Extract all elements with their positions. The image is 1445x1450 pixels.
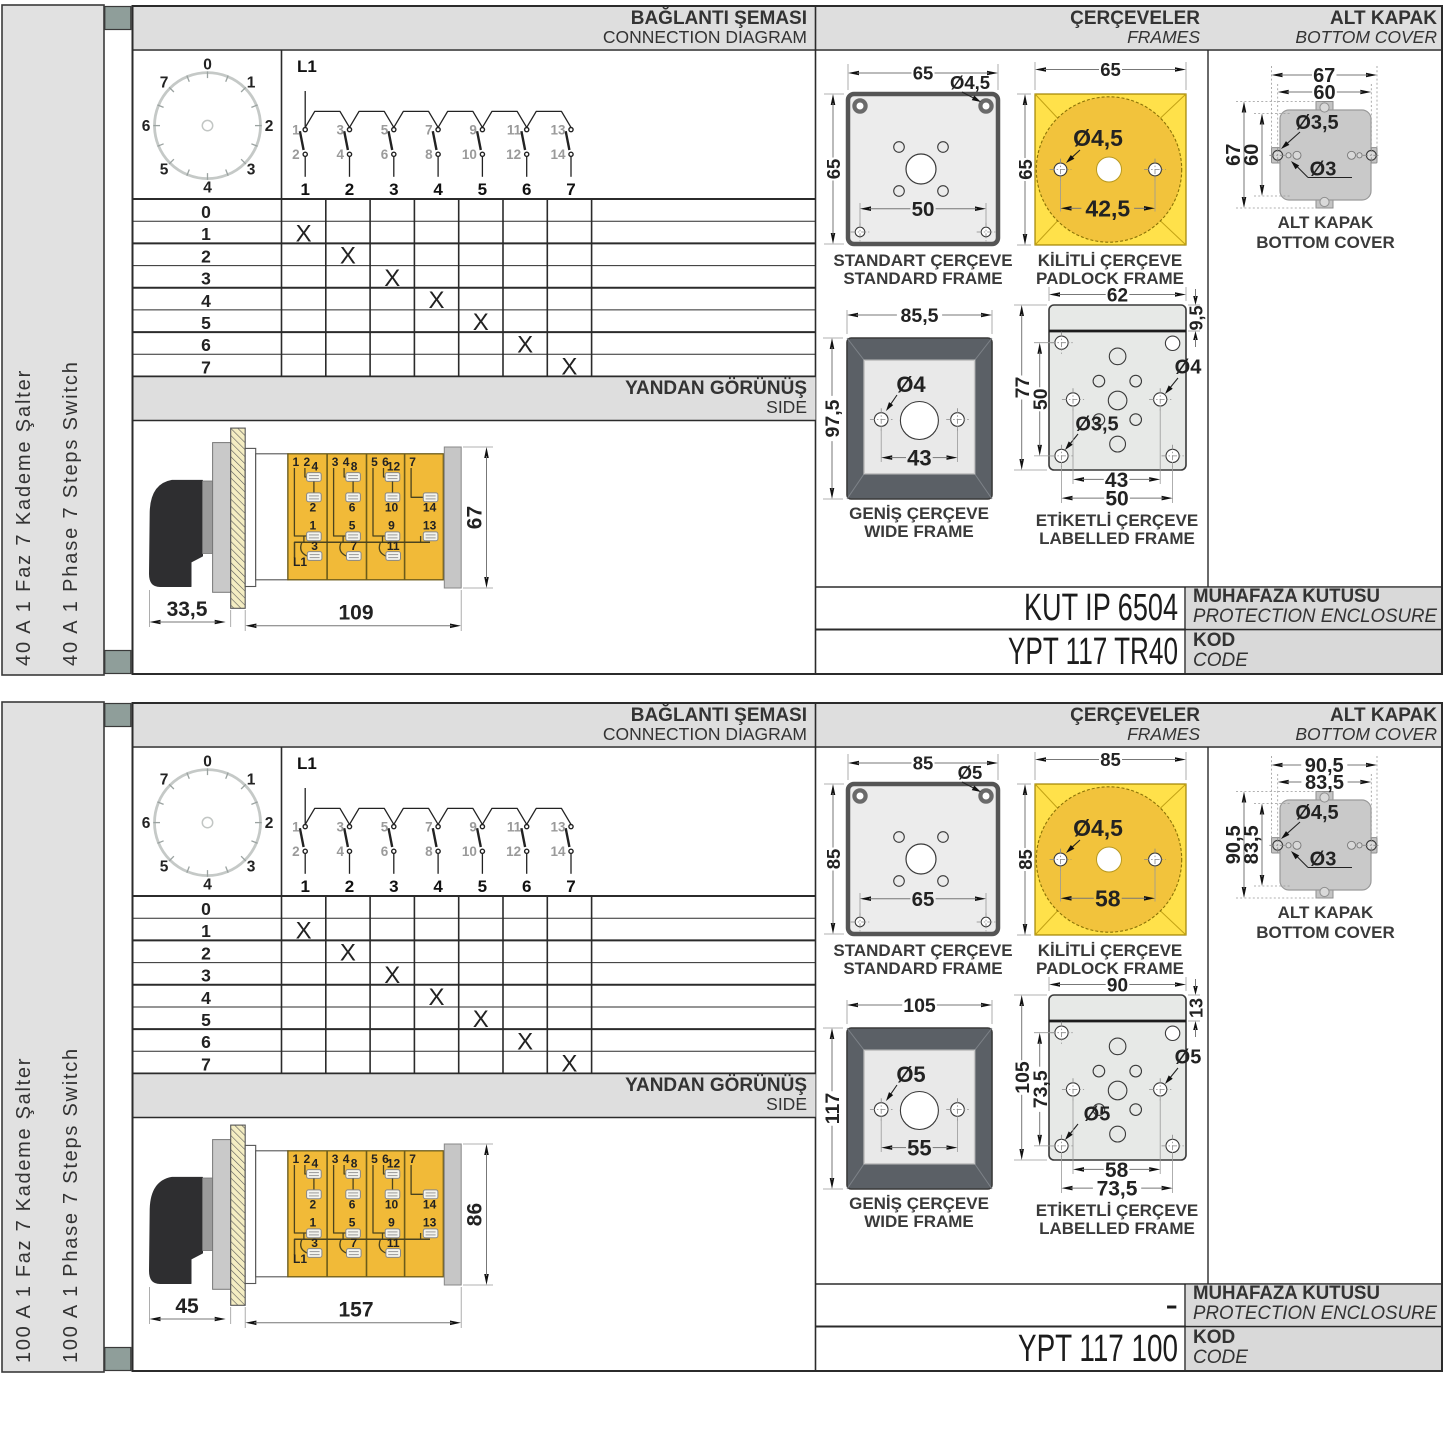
svg-text:L1: L1 xyxy=(297,57,317,76)
svg-text:62: 62 xyxy=(1107,285,1128,306)
svg-text:6: 6 xyxy=(349,1198,356,1212)
svg-text:8: 8 xyxy=(425,844,433,859)
svg-text:7: 7 xyxy=(566,180,575,199)
svg-text:X: X xyxy=(384,265,400,292)
svg-text:7: 7 xyxy=(425,819,433,834)
svg-text:0: 0 xyxy=(201,899,211,919)
svg-text:2: 2 xyxy=(292,147,300,162)
svg-text:0: 0 xyxy=(201,202,211,222)
svg-text:2: 2 xyxy=(304,455,311,469)
svg-text:PROTECTION ENCLOSURE: PROTECTION ENCLOSURE xyxy=(1193,606,1437,627)
svg-text:11: 11 xyxy=(387,1236,400,1250)
svg-text:10: 10 xyxy=(462,844,477,859)
svg-text:4: 4 xyxy=(312,1157,319,1171)
svg-text:0: 0 xyxy=(203,57,212,74)
svg-text:MUHAFAZA KUTUSU: MUHAFAZA KUTUSU xyxy=(1193,586,1380,607)
svg-text:83,5: 83,5 xyxy=(1305,772,1344,794)
svg-text:2: 2 xyxy=(310,1198,317,1212)
svg-text:BAĞLANTI ŞEMASI: BAĞLANTI ŞEMASI xyxy=(631,7,807,29)
svg-text:6: 6 xyxy=(142,118,151,135)
svg-text:4: 4 xyxy=(201,988,211,1008)
svg-text:85,5: 85,5 xyxy=(901,305,939,327)
svg-text:Ø3,5: Ø3,5 xyxy=(1295,112,1338,134)
svg-text:0: 0 xyxy=(203,754,212,771)
svg-text:Ø5: Ø5 xyxy=(1175,1047,1202,1069)
svg-text:Ø5: Ø5 xyxy=(958,762,983,783)
svg-text:4: 4 xyxy=(336,147,344,162)
svg-text:73,5: 73,5 xyxy=(1030,1070,1052,1108)
svg-text:6: 6 xyxy=(522,180,531,199)
svg-text:FRAMES: FRAMES xyxy=(1127,27,1200,47)
svg-text:5: 5 xyxy=(381,819,389,834)
svg-text:FRAMES: FRAMES xyxy=(1127,724,1200,744)
svg-text:105: 105 xyxy=(903,995,936,1017)
svg-text:11: 11 xyxy=(507,122,522,137)
svg-text:6: 6 xyxy=(142,815,151,832)
svg-text:3: 3 xyxy=(332,455,339,469)
svg-text:9: 9 xyxy=(469,122,477,137)
svg-text:X: X xyxy=(428,287,444,314)
svg-text:BOTTOM COVER: BOTTOM COVER xyxy=(1295,27,1437,47)
svg-text:60: 60 xyxy=(1313,82,1335,104)
svg-text:1: 1 xyxy=(293,1152,300,1166)
svg-text:-: - xyxy=(1165,1284,1178,1326)
svg-text:97,5: 97,5 xyxy=(822,399,844,437)
svg-text:2: 2 xyxy=(310,501,317,515)
svg-text:Ø4,5: Ø4,5 xyxy=(1073,125,1123,151)
svg-text:KİLİTLİ ÇERÇEVE: KİLİTLİ ÇERÇEVE xyxy=(1038,251,1183,270)
svg-text:40 A 1 Faz 7 Kademe Şalter: 40 A 1 Faz 7 Kademe Şalter xyxy=(13,369,35,666)
svg-text:5: 5 xyxy=(349,519,356,533)
svg-text:3: 3 xyxy=(389,877,398,896)
svg-text:3: 3 xyxy=(311,539,318,553)
svg-text:LABELLED FRAME: LABELLED FRAME xyxy=(1039,1219,1195,1238)
svg-text:2: 2 xyxy=(265,118,274,135)
svg-text:8: 8 xyxy=(351,1157,358,1171)
svg-text:9: 9 xyxy=(388,519,395,533)
svg-text:Ø4: Ø4 xyxy=(1175,357,1203,379)
svg-text:7: 7 xyxy=(201,357,211,377)
svg-text:L1: L1 xyxy=(297,754,317,773)
svg-text:ALT KAPAK: ALT KAPAK xyxy=(1330,705,1437,726)
svg-text:CONNECTION DIAGRAM: CONNECTION DIAGRAM xyxy=(603,724,807,744)
svg-text:109: 109 xyxy=(338,602,373,625)
svg-text:YANDAN GÖRÜNÜŞ: YANDAN GÖRÜNÜŞ xyxy=(625,1075,807,1096)
svg-text:Ø4,5: Ø4,5 xyxy=(1295,802,1338,824)
svg-text:X: X xyxy=(517,331,533,358)
svg-text:157: 157 xyxy=(338,1299,373,1322)
svg-text:10: 10 xyxy=(462,147,477,162)
svg-text:9,5: 9,5 xyxy=(1187,305,1207,330)
svg-text:WIDE FRAME: WIDE FRAME xyxy=(864,1212,974,1231)
svg-text:7: 7 xyxy=(409,455,416,469)
svg-text:10: 10 xyxy=(385,1198,399,1212)
svg-text:3: 3 xyxy=(389,180,398,199)
svg-text:KOD: KOD xyxy=(1193,630,1235,651)
svg-text:60: 60 xyxy=(1241,144,1263,166)
svg-text:SIDE: SIDE xyxy=(766,397,807,417)
svg-text:3: 3 xyxy=(201,269,211,289)
svg-text:Ø4: Ø4 xyxy=(896,372,926,397)
svg-text:KİLİTLİ ÇERÇEVE: KİLİTLİ ÇERÇEVE xyxy=(1038,941,1183,960)
svg-text:4: 4 xyxy=(336,844,344,859)
svg-text:8: 8 xyxy=(351,460,358,474)
svg-text:1: 1 xyxy=(300,877,309,896)
svg-text:3: 3 xyxy=(311,1236,318,1250)
svg-text:STANDART ÇERÇEVE: STANDART ÇERÇEVE xyxy=(833,251,1012,270)
svg-text:100 A 1 Phase 7 Steps Switch: 100 A 1 Phase 7 Steps Switch xyxy=(60,1047,82,1363)
svg-text:X: X xyxy=(473,309,489,336)
svg-text:BAĞLANTI ŞEMASI: BAĞLANTI ŞEMASI xyxy=(631,704,807,726)
svg-text:3: 3 xyxy=(336,819,344,834)
svg-text:4: 4 xyxy=(203,877,212,894)
svg-text:6: 6 xyxy=(201,335,211,355)
svg-text:3: 3 xyxy=(247,859,256,876)
svg-text:65: 65 xyxy=(912,888,935,911)
svg-text:33,5: 33,5 xyxy=(167,598,208,621)
svg-text:ETİKETLİ ÇERÇEVE: ETİKETLİ ÇERÇEVE xyxy=(1036,511,1198,530)
svg-text:1: 1 xyxy=(247,75,256,92)
svg-text:GENİŞ ÇERÇEVE: GENİŞ ÇERÇEVE xyxy=(849,1194,989,1213)
svg-text:3: 3 xyxy=(247,162,256,179)
svg-text:Ø4,5: Ø4,5 xyxy=(950,72,990,93)
svg-text:50: 50 xyxy=(912,198,935,221)
svg-text:X: X xyxy=(340,940,356,967)
svg-text:4: 4 xyxy=(201,291,211,311)
svg-text:2: 2 xyxy=(292,844,300,859)
svg-text:ETİKETLİ ÇERÇEVE: ETİKETLİ ÇERÇEVE xyxy=(1036,1201,1198,1220)
svg-text:5: 5 xyxy=(381,122,389,137)
svg-text:4: 4 xyxy=(433,877,443,896)
svg-text:42,5: 42,5 xyxy=(1085,196,1130,222)
svg-text:2: 2 xyxy=(345,877,354,896)
svg-text:5: 5 xyxy=(201,1010,211,1030)
svg-text:90: 90 xyxy=(1107,975,1128,996)
svg-text:7: 7 xyxy=(350,539,357,553)
svg-text:11: 11 xyxy=(387,539,400,553)
svg-text:13: 13 xyxy=(550,819,566,834)
svg-text:14: 14 xyxy=(423,1198,437,1212)
svg-text:83,5: 83,5 xyxy=(1241,825,1263,864)
svg-text:67: 67 xyxy=(464,506,487,529)
svg-text:58: 58 xyxy=(1095,886,1121,912)
svg-text:85: 85 xyxy=(913,753,934,774)
svg-text:6: 6 xyxy=(381,844,389,859)
svg-text:1: 1 xyxy=(310,519,317,533)
svg-text:12: 12 xyxy=(387,1157,401,1171)
svg-text:2: 2 xyxy=(345,180,354,199)
svg-text:KOD: KOD xyxy=(1193,1327,1235,1348)
svg-text:5: 5 xyxy=(160,162,169,179)
svg-text:1: 1 xyxy=(292,122,300,137)
svg-text:7: 7 xyxy=(566,877,575,896)
svg-text:STANDARD FRAME: STANDARD FRAME xyxy=(843,269,1002,288)
svg-text:100 A 1 Faz 7 Kademe Şalter: 100 A 1 Faz 7 Kademe Şalter xyxy=(13,1057,35,1363)
svg-text:9: 9 xyxy=(388,1216,395,1230)
svg-text:13: 13 xyxy=(1187,998,1207,1018)
svg-text:1: 1 xyxy=(247,772,256,789)
svg-text:1: 1 xyxy=(300,180,309,199)
svg-text:65: 65 xyxy=(1015,159,1036,180)
svg-text:7: 7 xyxy=(350,1236,357,1250)
svg-text:12: 12 xyxy=(387,460,401,474)
svg-text:11: 11 xyxy=(507,819,522,834)
svg-text:CONNECTION DIAGRAM: CONNECTION DIAGRAM xyxy=(603,27,807,47)
svg-text:MUHAFAZA KUTUSU: MUHAFAZA KUTUSU xyxy=(1193,1283,1380,1304)
svg-text:WIDE FRAME: WIDE FRAME xyxy=(864,522,974,541)
svg-text:4: 4 xyxy=(343,1152,350,1166)
svg-text:L1: L1 xyxy=(293,1252,307,1266)
svg-text:3: 3 xyxy=(332,1152,339,1166)
svg-text:1: 1 xyxy=(310,1216,317,1230)
svg-text:BOTTOM COVER: BOTTOM COVER xyxy=(1256,923,1395,942)
svg-text:14: 14 xyxy=(550,844,566,859)
svg-text:6: 6 xyxy=(522,877,531,896)
svg-text:10: 10 xyxy=(385,501,399,515)
svg-text:14: 14 xyxy=(550,147,566,162)
svg-text:5: 5 xyxy=(478,877,487,896)
svg-text:40 A 1 Phase 7 Steps Switch: 40 A 1 Phase 7 Steps Switch xyxy=(60,360,82,666)
svg-text:2: 2 xyxy=(201,246,211,266)
svg-text:50: 50 xyxy=(1030,388,1052,410)
svg-text:LABELLED FRAME: LABELLED FRAME xyxy=(1039,529,1195,548)
svg-text:X: X xyxy=(296,220,312,247)
svg-text:1: 1 xyxy=(292,819,300,834)
svg-text:5: 5 xyxy=(160,859,169,876)
svg-text:Ø4,5: Ø4,5 xyxy=(1073,815,1123,841)
svg-text:ÇERÇEVELER: ÇERÇEVELER xyxy=(1070,705,1200,726)
svg-text:13: 13 xyxy=(550,122,566,137)
svg-text:65: 65 xyxy=(823,159,844,180)
svg-text:X: X xyxy=(296,917,312,944)
svg-text:13: 13 xyxy=(423,519,437,533)
svg-text:5: 5 xyxy=(371,455,378,469)
svg-text:CODE: CODE xyxy=(1193,650,1248,671)
svg-text:5: 5 xyxy=(478,180,487,199)
svg-text:8: 8 xyxy=(425,147,433,162)
svg-text:6: 6 xyxy=(201,1032,211,1052)
svg-text:3: 3 xyxy=(201,966,211,986)
svg-text:STANDART ÇERÇEVE: STANDART ÇERÇEVE xyxy=(833,941,1012,960)
svg-text:BOTTOM COVER: BOTTOM COVER xyxy=(1295,724,1437,744)
svg-text:14: 14 xyxy=(423,501,437,515)
svg-text:45: 45 xyxy=(175,1295,199,1318)
svg-text:9: 9 xyxy=(469,819,477,834)
svg-text:13: 13 xyxy=(423,1216,437,1230)
svg-text:85: 85 xyxy=(823,849,844,870)
svg-text:GENİŞ ÇERÇEVE: GENİŞ ÇERÇEVE xyxy=(849,504,989,523)
svg-text:2: 2 xyxy=(265,815,274,832)
svg-text:4: 4 xyxy=(343,455,350,469)
svg-text:KUT IP 6504: KUT IP 6504 xyxy=(1024,587,1178,629)
svg-text:6: 6 xyxy=(381,147,389,162)
svg-text:2: 2 xyxy=(201,943,211,963)
svg-text:1: 1 xyxy=(201,921,211,941)
svg-text:12: 12 xyxy=(506,844,521,859)
svg-text:4: 4 xyxy=(312,460,319,474)
svg-text:5: 5 xyxy=(349,1216,356,1230)
svg-text:X: X xyxy=(473,1006,489,1033)
svg-text:YPT 117 TR40: YPT 117 TR40 xyxy=(1008,631,1178,673)
svg-text:1: 1 xyxy=(293,455,300,469)
svg-text:7: 7 xyxy=(160,772,169,789)
svg-text:YPT 117 100: YPT 117 100 xyxy=(1018,1328,1178,1370)
svg-text:55: 55 xyxy=(907,1136,931,1161)
svg-text:ÇERÇEVELER: ÇERÇEVELER xyxy=(1070,8,1200,29)
svg-text:CODE: CODE xyxy=(1193,1347,1248,1368)
svg-text:7: 7 xyxy=(409,1152,416,1166)
svg-text:4: 4 xyxy=(203,180,212,197)
svg-text:4: 4 xyxy=(433,180,443,199)
svg-text:7: 7 xyxy=(425,122,433,137)
svg-text:ALT KAPAK: ALT KAPAK xyxy=(1330,8,1437,29)
svg-text:7: 7 xyxy=(160,75,169,92)
svg-text:BOTTOM COVER: BOTTOM COVER xyxy=(1256,233,1395,252)
svg-text:X: X xyxy=(384,962,400,989)
svg-text:6: 6 xyxy=(349,501,356,515)
svg-text:65: 65 xyxy=(1100,59,1121,80)
svg-text:85: 85 xyxy=(1015,849,1036,870)
svg-text:7: 7 xyxy=(201,1054,211,1074)
svg-text:2: 2 xyxy=(304,1152,311,1166)
svg-text:43: 43 xyxy=(907,446,931,471)
svg-text:Ø5: Ø5 xyxy=(1084,1104,1111,1126)
svg-text:X: X xyxy=(340,243,356,270)
svg-text:PROTECTION ENCLOSURE: PROTECTION ENCLOSURE xyxy=(1193,1303,1437,1324)
svg-text:73,5: 73,5 xyxy=(1097,1178,1138,1201)
svg-text:65: 65 xyxy=(913,63,934,84)
svg-text:YANDAN GÖRÜNÜŞ: YANDAN GÖRÜNÜŞ xyxy=(625,378,807,399)
svg-text:Ø5: Ø5 xyxy=(896,1062,925,1087)
svg-text:5: 5 xyxy=(201,313,211,333)
svg-text:Ø3,5: Ø3,5 xyxy=(1075,414,1118,436)
svg-text:X: X xyxy=(517,1028,533,1055)
svg-text:ALT KAPAK: ALT KAPAK xyxy=(1278,213,1374,232)
svg-text:ALT KAPAK: ALT KAPAK xyxy=(1278,903,1374,922)
svg-text:1: 1 xyxy=(201,224,211,244)
svg-text:L1: L1 xyxy=(293,555,307,569)
svg-text:86: 86 xyxy=(464,1203,487,1226)
svg-text:50: 50 xyxy=(1105,488,1128,511)
svg-text:X: X xyxy=(428,984,444,1011)
svg-text:STANDARD FRAME: STANDARD FRAME xyxy=(843,959,1002,978)
svg-text:85: 85 xyxy=(1100,749,1121,770)
svg-text:12: 12 xyxy=(506,147,521,162)
svg-text:SIDE: SIDE xyxy=(766,1094,807,1114)
svg-text:3: 3 xyxy=(336,122,344,137)
svg-text:117: 117 xyxy=(822,1093,844,1124)
svg-text:5: 5 xyxy=(371,1152,378,1166)
